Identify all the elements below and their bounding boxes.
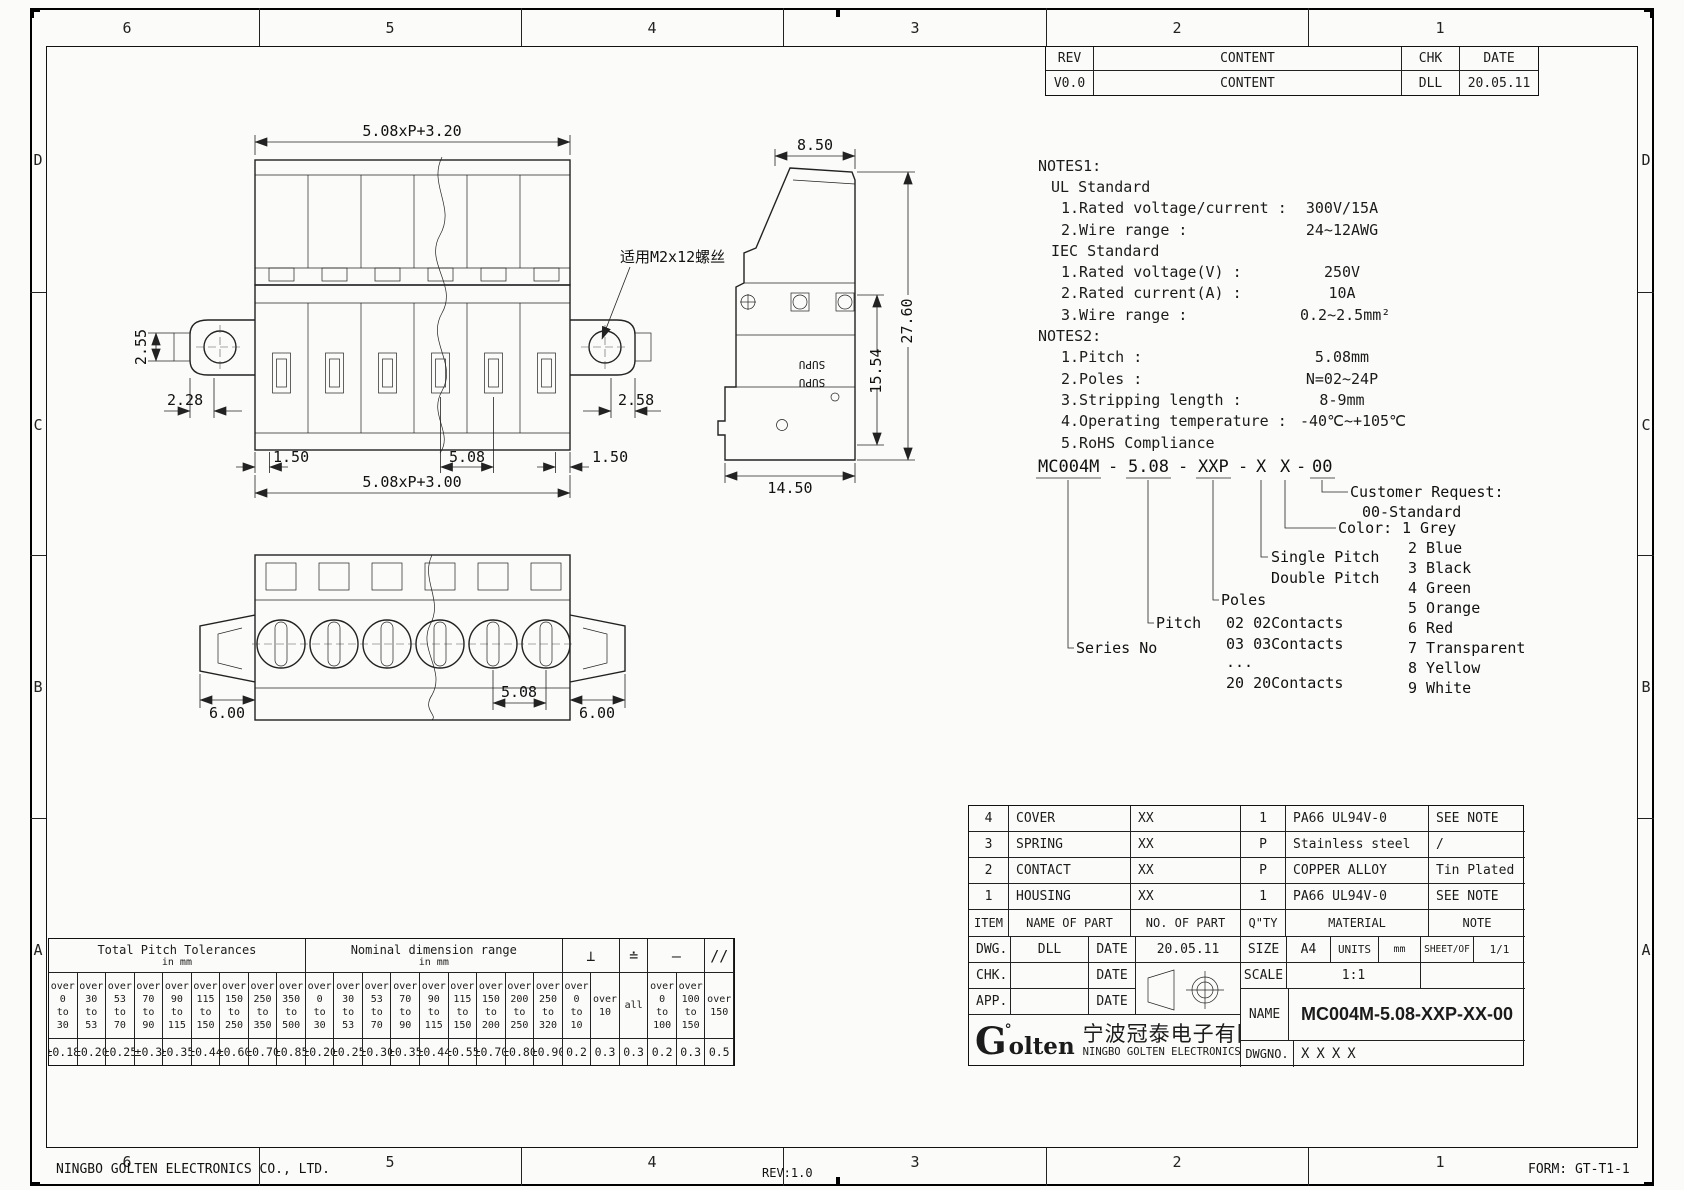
units-value: mm bbox=[1379, 937, 1421, 963]
zone-tick bbox=[1638, 818, 1654, 819]
part-note: Tin Plated bbox=[1429, 858, 1525, 884]
zone-col-label: 1 bbox=[1435, 1153, 1444, 1171]
ul-standard-text: UL Standard bbox=[1038, 178, 1300, 196]
note-label: 5.RoHS Compliance bbox=[1038, 434, 1300, 452]
tol-range: over 70 to 90 bbox=[391, 973, 420, 1039]
footer-rev: REV:1.0 bbox=[762, 1166, 813, 1180]
chk-name bbox=[1011, 963, 1089, 989]
dim-2-58-text: 2.58 bbox=[618, 391, 654, 409]
tol-value: ±0.30 bbox=[363, 1039, 392, 1065]
trim-mark bbox=[1644, 1182, 1654, 1186]
code-custom: 00 bbox=[1312, 457, 1332, 477]
zone-row-label: A bbox=[1641, 941, 1650, 959]
dwg-name: DLL bbox=[1011, 937, 1089, 963]
part-no: XX bbox=[1131, 858, 1241, 884]
part-material: Stainless steel bbox=[1286, 832, 1429, 858]
dim-1-50-right-text: 1.50 bbox=[592, 448, 628, 466]
note-value: 24~12AWG bbox=[1300, 221, 1384, 239]
title-block: 4 COVER XX 1 PA66 UL94V-0 SEE NOTE 3 SPR… bbox=[968, 805, 1524, 1066]
company-names: 宁波冠泰电子有限公司 NINGBO GOLTEN ELECTRONICS CO.… bbox=[1083, 1024, 1241, 1057]
rev-value: V0.0 bbox=[1046, 71, 1094, 95]
tol-value: 0.3 bbox=[591, 1039, 620, 1065]
color-item: 1 Grey bbox=[1402, 519, 1456, 537]
parts-header-name: NAME OF PART bbox=[1009, 910, 1131, 937]
dimension-5-08-front: 5.08 bbox=[493, 670, 546, 710]
tol-value: 0.5 bbox=[705, 1039, 734, 1065]
size-label: SIZE bbox=[1241, 937, 1287, 963]
part-name: CONTACT bbox=[1009, 858, 1131, 884]
dim-14-50-text: 14.50 bbox=[767, 479, 812, 497]
parts-header-item: ITEM bbox=[969, 910, 1009, 937]
tol-range: over 150 to 250 bbox=[220, 973, 249, 1039]
tol-value: ±0.70 bbox=[477, 1039, 506, 1065]
customer-request-label: Customer Request: bbox=[1350, 483, 1504, 501]
tol-range: over 150 bbox=[705, 973, 734, 1039]
part-no: XX bbox=[1131, 832, 1241, 858]
break-line bbox=[436, 157, 447, 453]
dim-2-28-text: 2.28 bbox=[167, 391, 203, 409]
brand-text: SUPU bbox=[799, 376, 826, 389]
tol-range: over 150 to 200 bbox=[477, 973, 506, 1039]
company-name-cn: 宁波冠泰电子有限公司 bbox=[1083, 1024, 1241, 1046]
tol-range: over 100 to 150 bbox=[677, 973, 706, 1039]
dimension-2-58: 2.58 bbox=[583, 378, 661, 418]
app-label: APP. bbox=[969, 989, 1011, 1015]
zone-col-label: 4 bbox=[647, 19, 656, 37]
poles-item: 02 02Contacts bbox=[1226, 614, 1343, 632]
tol-value: ±0.85 bbox=[277, 1039, 306, 1065]
note-row: 4.Operating temperature :-40℃~+105℃ bbox=[1038, 411, 1508, 432]
app-date-label: DATE bbox=[1089, 989, 1136, 1015]
dimension-6-right: 6.00 bbox=[570, 674, 625, 722]
zone-row-label: C bbox=[33, 416, 42, 434]
parts-header-qty: Q"TY bbox=[1241, 910, 1286, 937]
part-name: HOUSING bbox=[1009, 884, 1131, 910]
tol-range: over 90 to 115 bbox=[163, 973, 192, 1039]
zone-tick bbox=[30, 555, 46, 556]
code-series: MC004M bbox=[1038, 457, 1099, 477]
brand-text: SUPU bbox=[799, 358, 826, 371]
dim-27-60-text: 27.60 bbox=[898, 298, 916, 343]
tol-range: over 115 to 150 bbox=[449, 973, 478, 1039]
dimension-cover-width: 5.08xP+3.20 bbox=[255, 122, 570, 155]
company-logo: G°olten 宁波冠泰电子有限公司 NINGBO GOLTEN ELECTRO… bbox=[969, 1023, 1241, 1060]
drawing-sheet: 6 5 4 3 2 1 6 5 4 3 2 1 D C B A D C B A … bbox=[0, 0, 1684, 1190]
sheet-value: 1/1 bbox=[1474, 937, 1525, 963]
footer-form: FORM: GT-T1-1 bbox=[1528, 1162, 1630, 1177]
color-item: 7 Transparent bbox=[1408, 639, 1525, 657]
code-dash: - bbox=[1238, 457, 1248, 477]
zone-col-label: 6 bbox=[122, 19, 131, 37]
drawing-name-value: MC004M-5.08-XXP-XX-00 bbox=[1289, 989, 1525, 1041]
perpendicularity-symbol-icon: ⊥ bbox=[563, 939, 620, 973]
ul-standard-header: UL Standard bbox=[1038, 176, 1508, 197]
footer-company: NINGBO GOLTEN ELECTRONICS CO., LTD. bbox=[56, 1162, 330, 1177]
dim-6-right-text: 6.00 bbox=[579, 704, 615, 722]
notes1-title: NOTES1: bbox=[1038, 155, 1508, 176]
poles-item: 03 03Contacts bbox=[1226, 635, 1343, 653]
dwg-label: DWG. bbox=[969, 937, 1011, 963]
tol-value: ±0.25 bbox=[334, 1039, 363, 1065]
parts-header-material: MATERIAL bbox=[1286, 910, 1429, 937]
part-note: SEE NOTE bbox=[1429, 806, 1525, 832]
trim-mark bbox=[30, 8, 34, 18]
tol-range: over 53 to 70 bbox=[363, 973, 392, 1039]
zone-tick bbox=[259, 8, 260, 46]
note-label: 2.Rated current(A) : bbox=[1038, 284, 1300, 302]
color-item: 6 Red bbox=[1408, 619, 1453, 637]
note-label: 2.Wire range : bbox=[1038, 221, 1300, 239]
size-value: A4 bbox=[1287, 937, 1331, 963]
ordering-code-diagram: MC004M - 5.08 - XXP - X X - 00 Series No… bbox=[1028, 450, 1568, 730]
code-dash: - bbox=[1296, 457, 1306, 477]
note-row: 1.Rated voltage(V) :250V bbox=[1038, 261, 1508, 282]
poles-item: ... bbox=[1226, 653, 1253, 671]
part-material: PA66 UL94V-0 bbox=[1286, 884, 1429, 910]
tol-range: all bbox=[620, 973, 649, 1039]
dwgno-label: DWGNO. bbox=[1241, 1041, 1294, 1067]
chk-date-label: DATE bbox=[1089, 963, 1136, 989]
single-pitch-label: Single Pitch bbox=[1271, 548, 1379, 566]
top-view-drawing: 5.08xP+3.20 2.55 2.28 2.58 bbox=[130, 115, 790, 515]
symmetry-symbol-icon: ≐ bbox=[620, 939, 649, 973]
note-value: 0.2~2.5mm² bbox=[1300, 306, 1384, 324]
zone-col-label: 2 bbox=[1172, 19, 1181, 37]
zone-row-label: B bbox=[33, 678, 42, 696]
content-col-header: CONTENT bbox=[1094, 47, 1402, 71]
chk-value: DLL bbox=[1402, 71, 1460, 95]
tol-range: over 0 to 30 bbox=[49, 973, 78, 1039]
tol-value: ±0.18 bbox=[49, 1039, 78, 1065]
color-label: Color: bbox=[1338, 519, 1392, 537]
zone-tick bbox=[521, 1148, 522, 1186]
zone-tick bbox=[783, 8, 784, 46]
note-value: 250V bbox=[1300, 263, 1384, 281]
dim-15-54-text: 15.54 bbox=[867, 348, 885, 393]
note-row: 2.Wire range :24~12AWG bbox=[1038, 219, 1508, 240]
note-label: 3.Wire range : bbox=[1038, 306, 1300, 324]
cover-outline bbox=[255, 160, 570, 285]
dwg-date-value: 20.05.11 bbox=[1136, 937, 1241, 963]
zone-row-label: D bbox=[33, 151, 42, 169]
dim-2-55-text: 2.55 bbox=[132, 329, 150, 365]
tol-range: over 115 to 150 bbox=[192, 973, 221, 1039]
part-no: XX bbox=[1131, 806, 1241, 832]
dimension-6-left: 6.00 bbox=[200, 674, 255, 722]
sheet-label: SHEET/OF bbox=[1421, 937, 1474, 963]
date-col-header: DATE bbox=[1460, 47, 1538, 71]
scale-extra bbox=[1421, 963, 1525, 989]
parallelism-symbol-icon: // bbox=[705, 939, 734, 973]
notes1-title-text: NOTES1: bbox=[1038, 157, 1300, 175]
tol-range: over 250 to 350 bbox=[249, 973, 278, 1039]
tol-range: over 0 to 100 bbox=[648, 973, 677, 1039]
zone-col-label: 1 bbox=[1435, 19, 1444, 37]
name-label: NAME bbox=[1241, 989, 1289, 1041]
trim-mark bbox=[30, 1182, 40, 1186]
zone-row-label: B bbox=[1641, 678, 1650, 696]
dim-8-50-text: 8.50 bbox=[797, 136, 833, 154]
tol-group1-title: Total Pitch Tolerancesin mm bbox=[49, 939, 306, 973]
side-view-drawing: SUPU SUPU 8.50 15.54 27.60 14.50 bbox=[700, 135, 950, 510]
revision-table: REV CONTENT CHK DATE V0.0 CONTENT DLL 20… bbox=[1045, 46, 1539, 96]
tol-value: ±0.70 bbox=[249, 1039, 278, 1065]
zone-tick bbox=[1638, 555, 1654, 556]
tol-value: ±0.55 bbox=[449, 1039, 478, 1065]
notes2-title: NOTES2: bbox=[1038, 325, 1508, 346]
dwgno-value: XXXX bbox=[1294, 1041, 1525, 1067]
part-material: COPPER ALLOY bbox=[1286, 858, 1429, 884]
center-mark bbox=[836, 8, 840, 17]
tol-value: 0.2 bbox=[563, 1039, 592, 1065]
zone-tick bbox=[1308, 1148, 1309, 1186]
tol-range: over 53 to 70 bbox=[106, 973, 135, 1039]
zone-row-label: D bbox=[1641, 151, 1650, 169]
dim-6-left-text: 6.00 bbox=[209, 704, 245, 722]
color-item: 3 Black bbox=[1408, 559, 1471, 577]
tol-range: over 0 to 10 bbox=[563, 973, 592, 1039]
zone-tick bbox=[1046, 1148, 1047, 1186]
front-view-drawing: 6.00 5.08 6.00 bbox=[180, 530, 660, 755]
iec-standard-header: IEC Standard bbox=[1038, 240, 1508, 261]
note-row: 3.Stripping length :8-9mm bbox=[1038, 389, 1508, 410]
tol-range: over 90 to 115 bbox=[420, 973, 449, 1039]
tol-value: ±0.44 bbox=[192, 1039, 221, 1065]
scale-value: 1:1 bbox=[1287, 963, 1421, 989]
zone-tick bbox=[521, 8, 522, 46]
zone-tick bbox=[1308, 8, 1309, 46]
note-row: 3.Wire range :0.2~2.5mm² bbox=[1038, 304, 1508, 325]
part-material: PA66 UL94V-0 bbox=[1286, 806, 1429, 832]
parts-header-no: NO. OF PART bbox=[1131, 910, 1241, 937]
tol-value: ±0.80 bbox=[506, 1039, 535, 1065]
note-value: -40℃~+105℃ bbox=[1300, 412, 1384, 430]
iec-standard-text: IEC Standard bbox=[1038, 242, 1300, 260]
tol-range: over 350 to 500 bbox=[277, 973, 306, 1039]
zone-col-label: 5 bbox=[385, 1153, 394, 1171]
zone-col-label: 3 bbox=[910, 19, 919, 37]
golten-logo: G°olten bbox=[975, 1023, 1075, 1060]
tol-group2-title-text: Nominal dimension range bbox=[351, 944, 517, 957]
tol-range: over 200 to 250 bbox=[506, 973, 535, 1039]
part-qty: P bbox=[1241, 858, 1286, 884]
chk-label: CHK. bbox=[969, 963, 1011, 989]
tol-group1-title-text: Total Pitch Tolerances bbox=[97, 944, 256, 957]
note-value: 300V/15A bbox=[1300, 199, 1384, 217]
tol-group2-sub: in mm bbox=[419, 957, 449, 968]
part-item: 4 bbox=[969, 806, 1009, 832]
code-x1: X bbox=[1256, 457, 1267, 477]
notes-block: NOTES1: UL Standard 1.Rated voltage/curr… bbox=[1038, 155, 1508, 453]
color-item: 2 Blue bbox=[1408, 539, 1462, 557]
dimension-15-54: 15.54 bbox=[857, 295, 885, 445]
dimension-27-60: 27.60 bbox=[857, 172, 916, 460]
notes2-title-text: NOTES2: bbox=[1038, 327, 1300, 345]
part-qty: 1 bbox=[1241, 884, 1286, 910]
note-value: N=02~24P bbox=[1300, 370, 1384, 388]
straightness-symbol-icon: — bbox=[648, 939, 705, 973]
rev-col-header: REV bbox=[1046, 47, 1094, 71]
zone-row-label: A bbox=[33, 941, 42, 959]
part-name: SPRING bbox=[1009, 832, 1131, 858]
tol-group1-sub: in mm bbox=[162, 957, 192, 968]
dimension-2-55: 2.55 bbox=[132, 329, 174, 365]
zone-col-label: 5 bbox=[385, 19, 394, 37]
pitch-label: Pitch bbox=[1156, 614, 1201, 632]
company-name-en: NINGBO GOLTEN ELECTRONICS CO., LTD. bbox=[1083, 1047, 1241, 1058]
note-row: 2.Rated current(A) :10A bbox=[1038, 283, 1508, 304]
trim-mark bbox=[1650, 8, 1654, 18]
code-dash: - bbox=[1178, 457, 1188, 477]
zone-col-label: 3 bbox=[910, 1153, 919, 1171]
tol-value: 0.3 bbox=[620, 1039, 649, 1065]
note-row: 2.Poles :N=02~24P bbox=[1038, 368, 1508, 389]
tol-value: ±0.20 bbox=[78, 1039, 107, 1065]
poles-label: Poles bbox=[1221, 591, 1266, 609]
series-label: Series No bbox=[1076, 639, 1157, 657]
third-angle-projection-icon bbox=[1140, 966, 1236, 1012]
tol-value: ±0.35 bbox=[163, 1039, 192, 1065]
logo-rest: olten bbox=[1009, 1033, 1075, 1060]
chk-col-header: CHK bbox=[1402, 47, 1460, 71]
part-item: 3 bbox=[969, 832, 1009, 858]
note-row: 1.Pitch :5.08mm bbox=[1038, 347, 1508, 368]
mounting-ears bbox=[174, 320, 651, 375]
ordering-code: MC004M - 5.08 - XXP - X X - 00 bbox=[1036, 457, 1335, 478]
part-name: COVER bbox=[1009, 806, 1131, 832]
note-label: 4.Operating temperature : bbox=[1038, 412, 1300, 430]
dim-body-width-text: 5.08xP+3.00 bbox=[362, 473, 461, 491]
logo-g: G bbox=[975, 1019, 1007, 1063]
tol-range: over 30 to 53 bbox=[78, 973, 107, 1039]
double-pitch-label: Double Pitch bbox=[1271, 569, 1379, 587]
break-line bbox=[427, 555, 436, 720]
code-dash: - bbox=[1108, 457, 1118, 477]
code-x2: X bbox=[1280, 457, 1291, 477]
note-label: 1.Rated voltage(V) : bbox=[1038, 263, 1300, 281]
note-label: 1.Rated voltage/current : bbox=[1038, 199, 1300, 217]
tol-value: ±0.44 bbox=[420, 1039, 449, 1065]
color-item: 5 Orange bbox=[1408, 599, 1480, 617]
dimension-14-50: 14.50 bbox=[725, 463, 855, 497]
code-poles: XXP bbox=[1198, 457, 1229, 477]
dwg-date-label: DATE bbox=[1089, 937, 1136, 963]
note-label: 2.Poles : bbox=[1038, 370, 1300, 388]
zone-tick bbox=[30, 818, 46, 819]
zone-row-label: C bbox=[1641, 416, 1650, 434]
note-row: 1.Rated voltage/current :300V/15A bbox=[1038, 198, 1508, 219]
part-no: XX bbox=[1131, 884, 1241, 910]
tol-range: over 250 to 320 bbox=[534, 973, 563, 1039]
poles-item: 20 20Contacts bbox=[1226, 674, 1343, 692]
part-qty: 1 bbox=[1241, 806, 1286, 832]
tol-group2-title: Nominal dimension rangein mm bbox=[306, 939, 563, 973]
tol-value: ±0.3 bbox=[135, 1039, 164, 1065]
color-item: 4 Green bbox=[1408, 579, 1471, 597]
dimension-2-28: 2.28 bbox=[164, 378, 242, 418]
tol-range: over 10 bbox=[591, 973, 620, 1039]
tolerance-table: Total Pitch Tolerancesin mm Nominal dime… bbox=[48, 938, 735, 1066]
color-item: 9 White bbox=[1408, 679, 1471, 697]
part-note: SEE NOTE bbox=[1429, 884, 1525, 910]
color-item: 8 Yellow bbox=[1408, 659, 1481, 677]
dim-5-08-front-text: 5.08 bbox=[501, 683, 537, 701]
dimension-body-width: 5.08xP+3.00 bbox=[255, 473, 570, 498]
company-logo-box: G°olten 宁波冠泰电子有限公司 NINGBO GOLTEN ELECTRO… bbox=[969, 1015, 1241, 1067]
zone-col-label: 4 bbox=[647, 1153, 656, 1171]
dim-cover-width-text: 5.08xP+3.20 bbox=[362, 122, 461, 140]
part-item: 1 bbox=[969, 884, 1009, 910]
tol-range: over 30 to 53 bbox=[334, 973, 363, 1039]
part-qty: P bbox=[1241, 832, 1286, 858]
tol-value: ±0.20 bbox=[306, 1039, 335, 1065]
customer-request-value: 00-Standard bbox=[1362, 503, 1461, 521]
part-item: 2 bbox=[969, 858, 1009, 884]
content-value: CONTENT bbox=[1094, 71, 1402, 95]
tol-value: ±0.25 bbox=[106, 1039, 135, 1065]
zone-tick bbox=[30, 292, 46, 293]
scale-label: SCALE bbox=[1241, 963, 1287, 989]
zone-col-label: 2 bbox=[1172, 1153, 1181, 1171]
side-profile: SUPU SUPU bbox=[718, 168, 855, 460]
parts-header-note: NOTE bbox=[1429, 910, 1525, 937]
part-note: / bbox=[1429, 832, 1525, 858]
note-label: 3.Stripping length : bbox=[1038, 391, 1300, 409]
dim-5-08-text: 5.08 bbox=[449, 448, 485, 466]
app-name bbox=[1011, 989, 1089, 1015]
note-label: 1.Pitch : bbox=[1038, 348, 1300, 366]
date-value: 20.05.11 bbox=[1460, 71, 1538, 95]
zone-tick bbox=[1046, 8, 1047, 46]
code-pitch: 5.08 bbox=[1128, 457, 1169, 477]
dim-1-50-left-text: 1.50 bbox=[273, 448, 309, 466]
dimension-8-50: 8.50 bbox=[775, 136, 855, 169]
tol-value: 0.3 bbox=[677, 1039, 706, 1065]
body-outline bbox=[255, 285, 570, 450]
tol-range: over 0 to 30 bbox=[306, 973, 335, 1039]
zone-tick bbox=[1638, 292, 1654, 293]
units-label: UNITS bbox=[1331, 937, 1379, 963]
center-mark bbox=[836, 1177, 840, 1186]
tol-value: ±0.60 bbox=[220, 1039, 249, 1065]
tol-range: over 70 to 90 bbox=[135, 973, 164, 1039]
tol-value: ±0.90 bbox=[534, 1039, 563, 1065]
tol-value: 0.2 bbox=[648, 1039, 677, 1065]
note-value: 10A bbox=[1300, 284, 1384, 302]
tol-value: ±0.35 bbox=[391, 1039, 420, 1065]
note-value: 8-9mm bbox=[1300, 391, 1384, 409]
projection-cell bbox=[1136, 963, 1241, 1015]
note-value: 5.08mm bbox=[1300, 348, 1384, 366]
